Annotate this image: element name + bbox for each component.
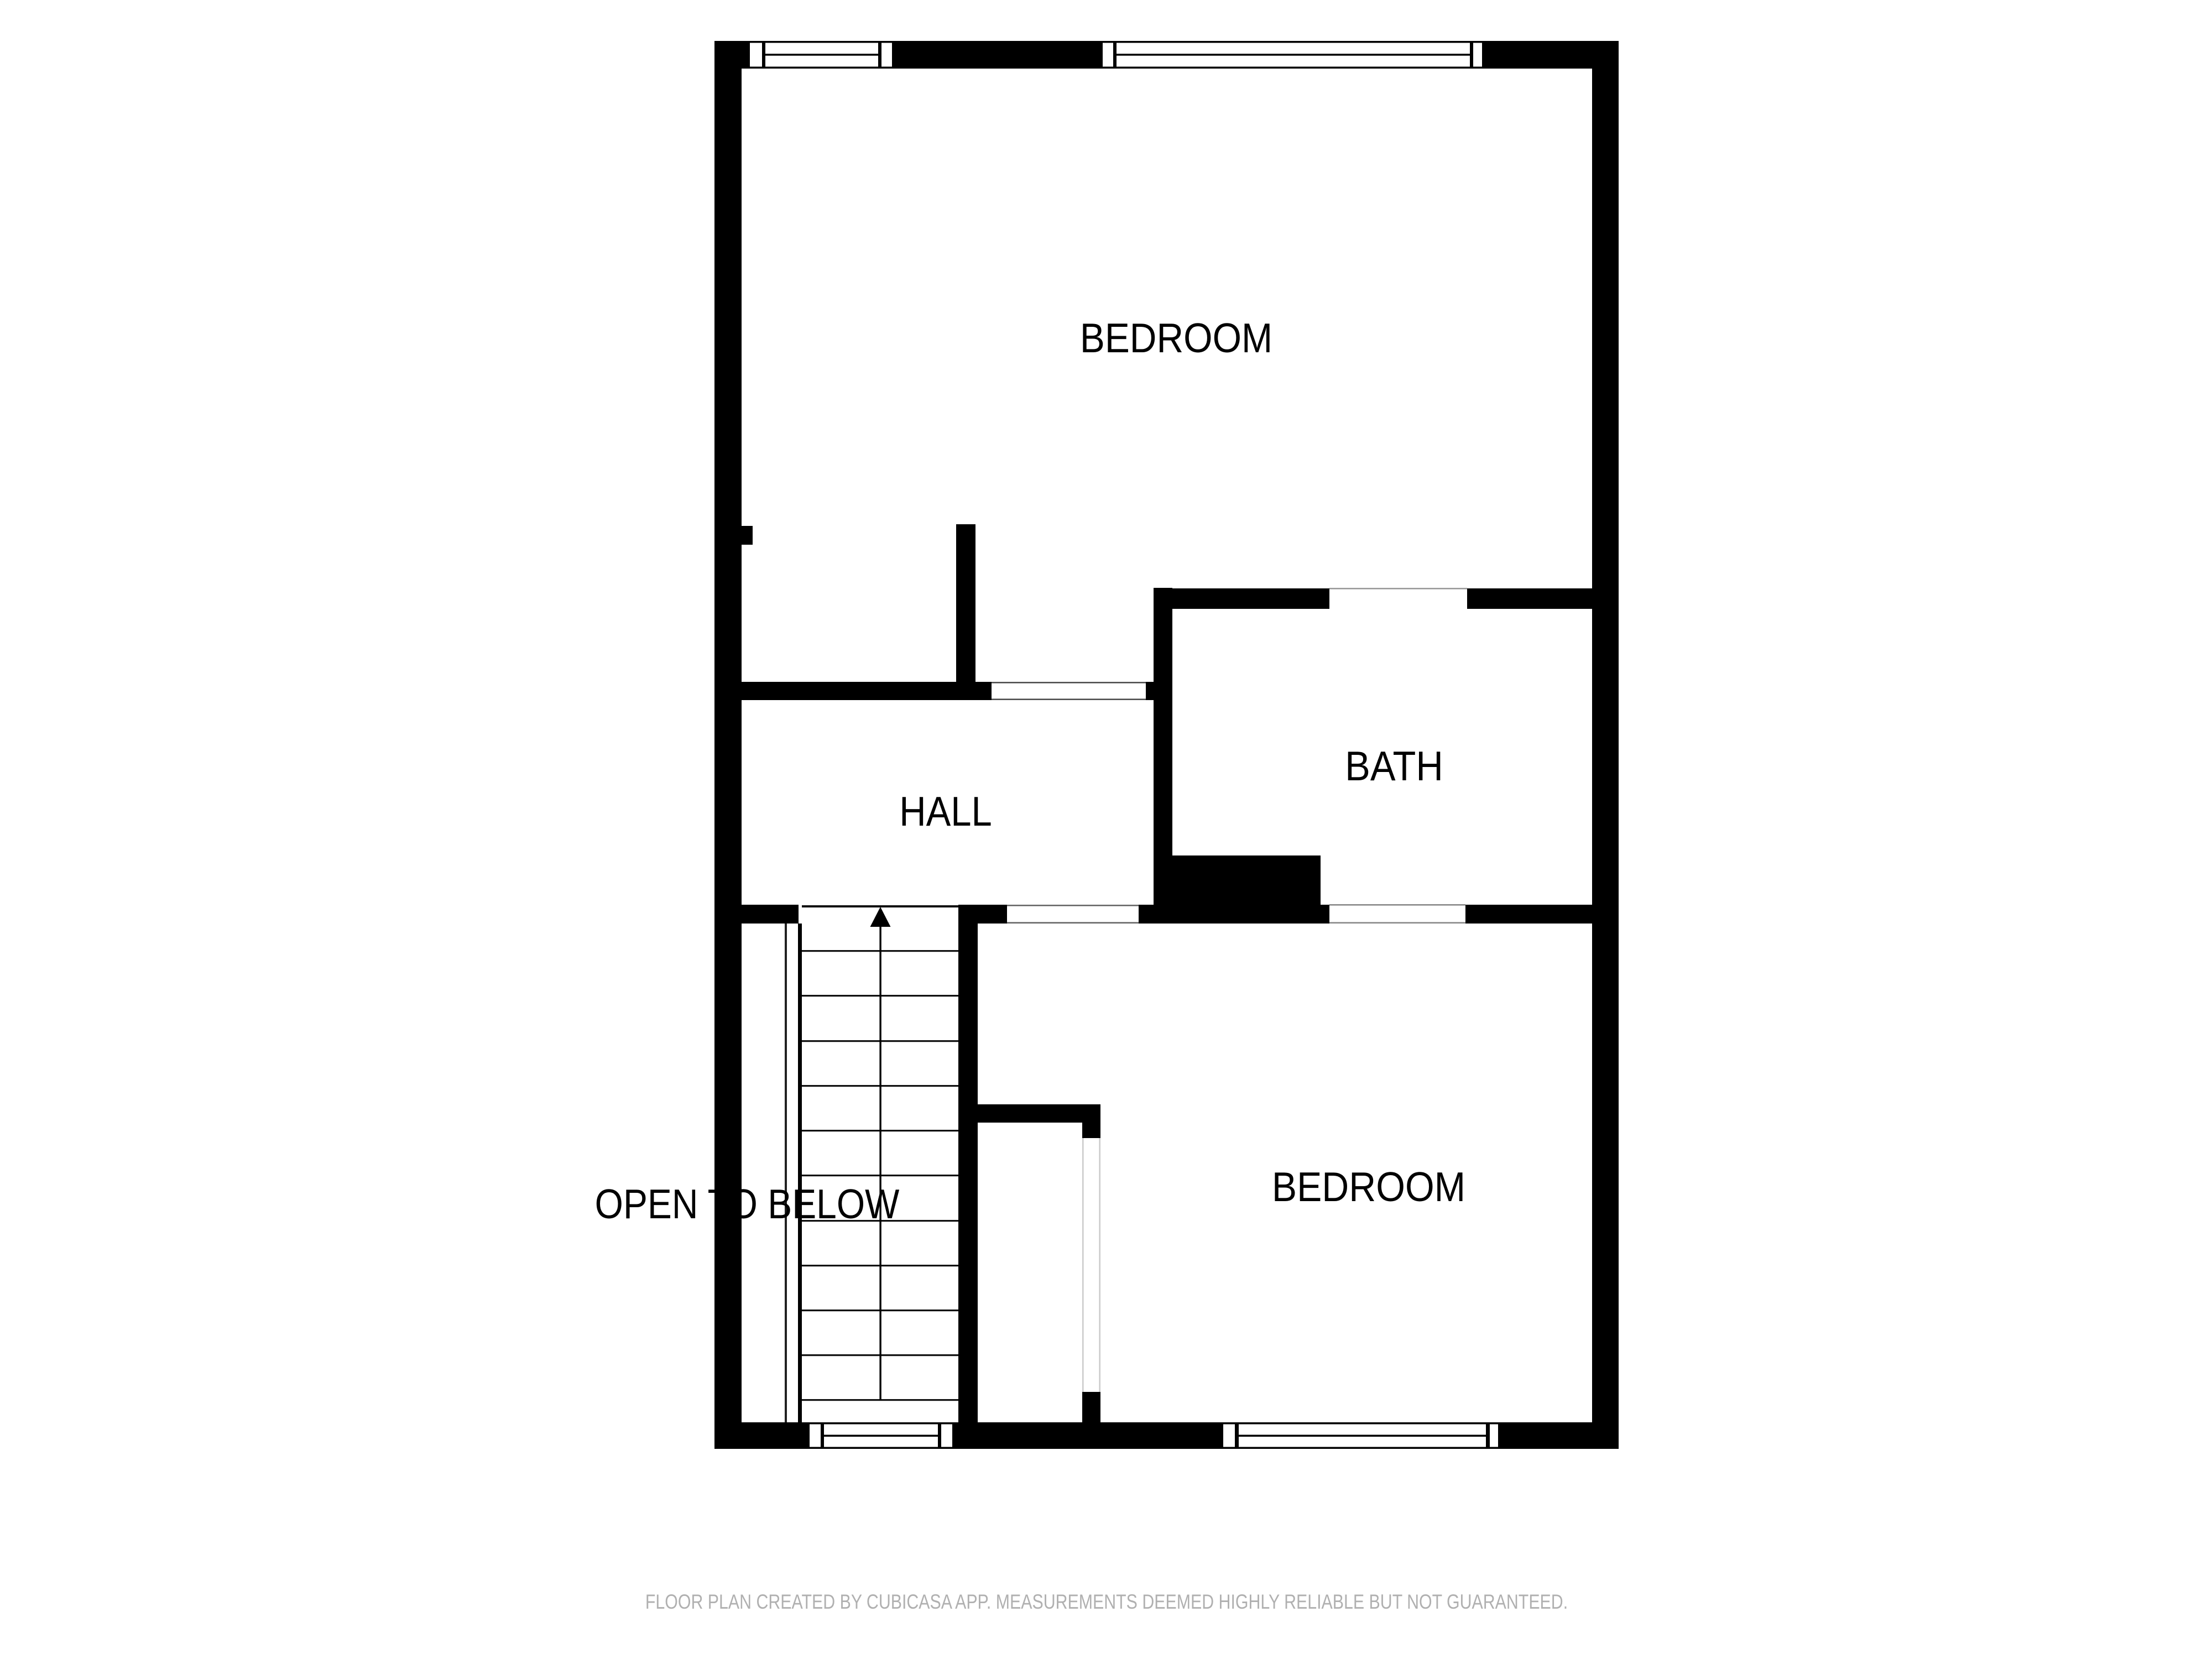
svg-text:FLOOR PLAN CREATED BY CUBICASA: FLOOR PLAN CREATED BY CUBICASA APP. MEAS… (645, 1590, 1568, 1614)
svg-text:BEDROOM: BEDROOM (1272, 1164, 1465, 1211)
svg-text:OPEN TO BELOW: OPEN TO BELOW (595, 1181, 900, 1227)
svg-text:HALL: HALL (899, 789, 992, 834)
svg-text:BATH: BATH (1345, 743, 1443, 790)
svg-text:BEDROOM: BEDROOM (1080, 315, 1272, 362)
